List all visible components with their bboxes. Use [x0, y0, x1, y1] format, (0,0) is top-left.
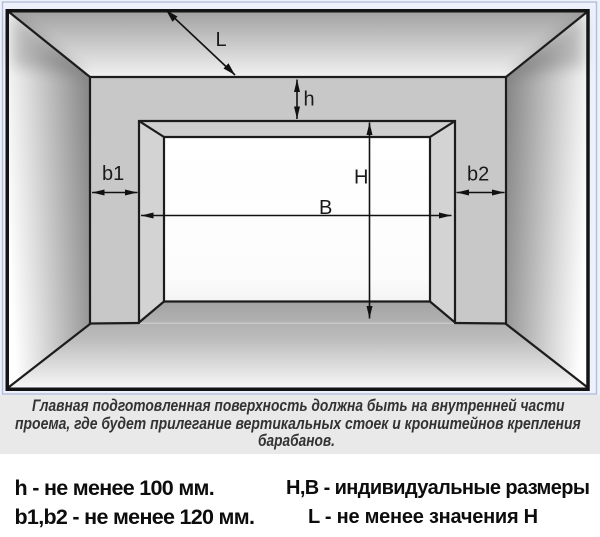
svg-text:h: h — [304, 89, 315, 111]
svg-text:b2: b2 — [467, 164, 489, 186]
svg-text:b1: b1 — [102, 163, 124, 185]
svg-text:B: B — [319, 197, 332, 219]
svg-text:L: L — [216, 29, 227, 51]
svg-text:H: H — [354, 167, 368, 189]
